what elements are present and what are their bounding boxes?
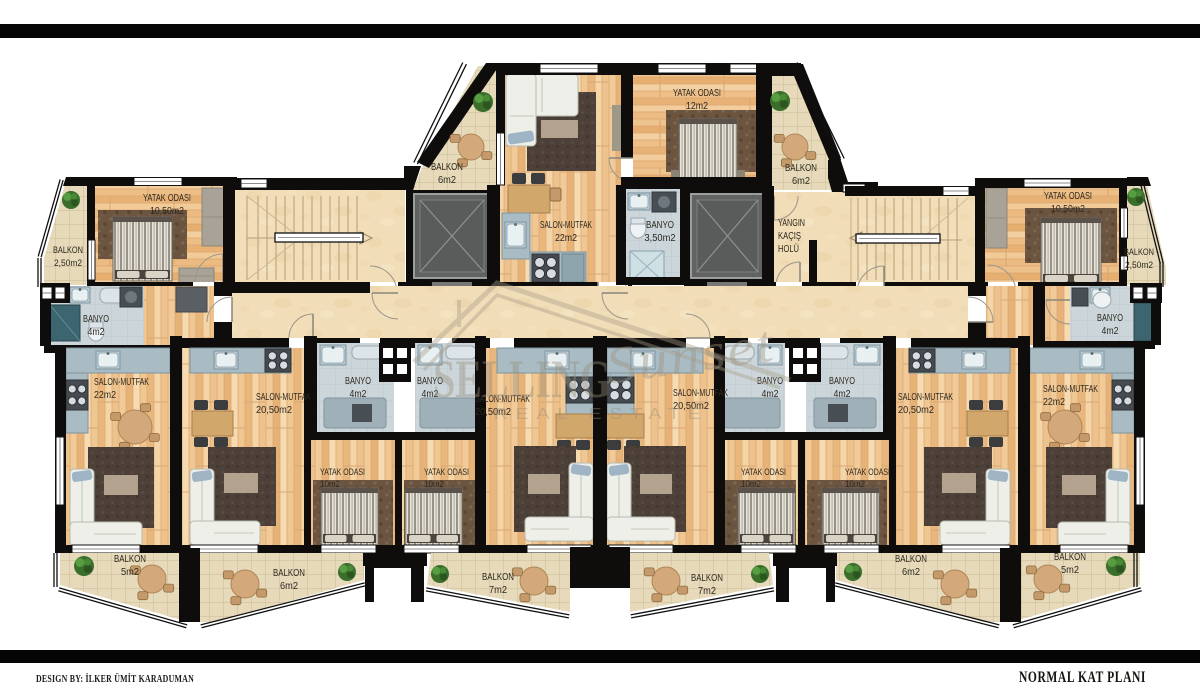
svg-text:BALKON: BALKON (273, 568, 305, 579)
svg-text:REAL ESTATE: REAL ESTATE (494, 406, 709, 423)
svg-text:4m2: 4m2 (834, 389, 851, 400)
svg-text:BALKON: BALKON (691, 573, 723, 584)
svg-text:SELLING: SELLING (433, 349, 611, 409)
svg-text:2,50m2: 2,50m2 (1125, 260, 1153, 271)
svg-text:KAÇIŞ: KAÇIŞ (778, 231, 801, 242)
svg-text:DESIGN BY: İLKER ÜMİT KARADUMA: DESIGN BY: İLKER ÜMİT KARADUMAN (36, 672, 194, 685)
svg-text:BALKON: BALKON (1054, 552, 1086, 563)
svg-text:YATAK ODASI: YATAK ODASI (424, 467, 469, 478)
svg-text:6m2: 6m2 (438, 175, 456, 186)
svg-text:22m2: 22m2 (94, 390, 116, 401)
svg-text:10m2: 10m2 (320, 479, 340, 490)
svg-text:BALKON: BALKON (53, 245, 83, 256)
svg-text:YANGIN: YANGIN (778, 218, 805, 229)
svg-text:SALON-MUTFAK: SALON-MUTFAK (94, 377, 149, 388)
svg-text:BANYO: BANYO (1097, 313, 1123, 324)
svg-text:YATAK ODASI: YATAK ODASI (320, 467, 365, 478)
svg-text:SALON-MUTFAK: SALON-MUTFAK (256, 392, 311, 403)
svg-text:20,50m2: 20,50m2 (898, 405, 934, 416)
svg-text:BALKON: BALKON (895, 554, 927, 565)
svg-text:6m2: 6m2 (280, 581, 298, 592)
svg-text:BANYO: BANYO (646, 220, 674, 231)
svg-text:4m2: 4m2 (762, 389, 779, 400)
svg-text:YATAK ODASI: YATAK ODASI (741, 467, 786, 478)
svg-text:10,50m2: 10,50m2 (150, 206, 184, 217)
svg-text:22m2: 22m2 (1043, 397, 1065, 408)
svg-text:4m2: 4m2 (1102, 326, 1119, 337)
svg-text:BALKON: BALKON (482, 572, 514, 583)
svg-text:10m2: 10m2 (424, 479, 444, 490)
svg-text:12m2: 12m2 (686, 101, 708, 112)
svg-text:5m2: 5m2 (1061, 565, 1079, 576)
svg-text:10,50m2: 10,50m2 (1051, 204, 1085, 215)
svg-text:SALON-MUTFAK: SALON-MUTFAK (673, 388, 728, 399)
svg-text:4m2: 4m2 (88, 327, 105, 338)
svg-text:10m2: 10m2 (741, 479, 761, 490)
svg-text:BANYO: BANYO (829, 376, 855, 387)
svg-text:YATAK ODASI: YATAK ODASI (1044, 191, 1092, 202)
svg-text:3,50m2: 3,50m2 (645, 233, 676, 244)
svg-text:SALON-MUTFAK: SALON-MUTFAK (898, 392, 953, 403)
svg-text:7m2: 7m2 (489, 585, 507, 596)
svg-text:SALON-MUTFAK: SALON-MUTFAK (1043, 384, 1098, 395)
svg-text:BALKON: BALKON (785, 163, 817, 174)
svg-text:HOLÜ: HOLÜ (778, 243, 799, 255)
svg-text:YATAK ODASI: YATAK ODASI (673, 88, 721, 99)
svg-text:10m2: 10m2 (845, 479, 865, 490)
svg-text:BALKON: BALKON (431, 162, 463, 173)
svg-text:7m2: 7m2 (698, 586, 716, 597)
svg-text:5m2: 5m2 (121, 567, 139, 578)
svg-text:BANYO: BANYO (345, 376, 371, 387)
svg-text:NORMAL KAT PLANI: NORMAL KAT PLANI (1019, 669, 1146, 686)
svg-text:20,50m2: 20,50m2 (256, 405, 292, 416)
svg-text:BALKON: BALKON (1124, 247, 1154, 258)
svg-text:6m2: 6m2 (902, 567, 920, 578)
svg-text:BANYO: BANYO (83, 314, 109, 325)
svg-text:YATAK ODASI: YATAK ODASI (845, 467, 890, 478)
svg-text:SALON-MUTFAK: SALON-MUTFAK (540, 220, 592, 231)
svg-text:YATAK ODASI: YATAK ODASI (143, 193, 191, 204)
svg-text:4m2: 4m2 (350, 389, 367, 400)
svg-text:BALKON: BALKON (114, 554, 146, 565)
svg-text:6m2: 6m2 (792, 176, 810, 187)
svg-text:22m2: 22m2 (555, 233, 577, 244)
svg-text:2,50m2: 2,50m2 (54, 258, 82, 269)
